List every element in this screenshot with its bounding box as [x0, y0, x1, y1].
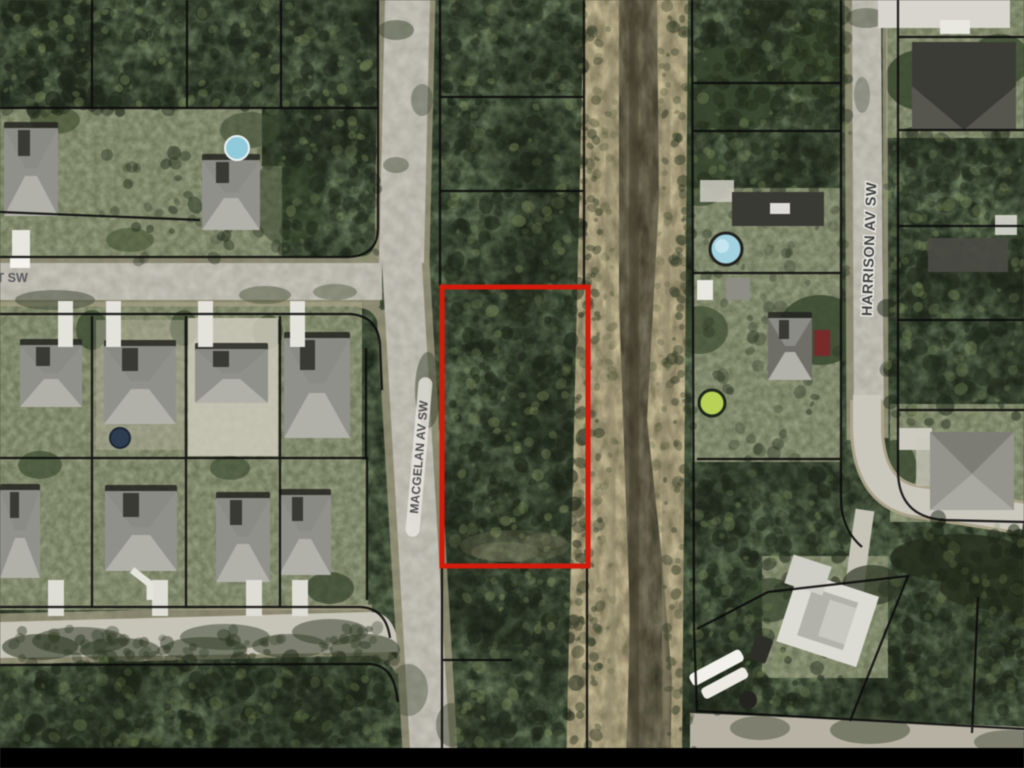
svg-text::ST SW: :ST SW	[0, 271, 28, 285]
